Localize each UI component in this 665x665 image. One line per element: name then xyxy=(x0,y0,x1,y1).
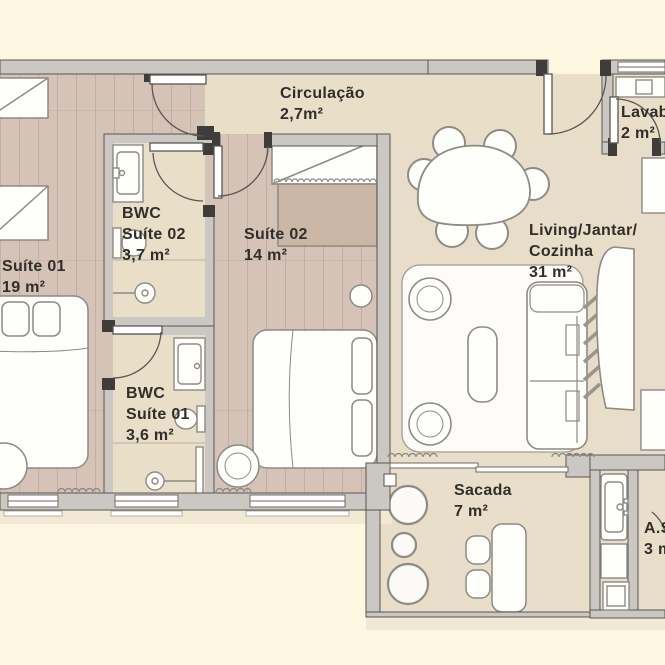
room-area: 3,6 m² xyxy=(126,425,190,446)
as-cabinet xyxy=(601,544,627,578)
room-label-area-servico: A.S. 3 m² xyxy=(644,518,665,560)
sofa xyxy=(527,282,587,449)
living-armchair-bottom xyxy=(409,403,451,445)
room-name: Suíte 02 xyxy=(244,224,308,245)
room-area: 3 m² xyxy=(644,539,665,560)
room-name: Lavabo xyxy=(621,102,665,123)
room-label-circulacao: Circulação 2,7m² xyxy=(280,83,365,125)
room-area: 7 m² xyxy=(454,501,512,522)
room-label-suite01: Suíte 01 19 m² xyxy=(2,256,66,298)
room-label-living: Living/Jantar/ Cozinha 31 m² xyxy=(529,220,637,283)
lavabo-fixtures xyxy=(616,77,665,97)
living-armchair-top xyxy=(409,278,451,320)
dining-table xyxy=(418,146,530,225)
room-name: Suíte 02 xyxy=(122,224,186,245)
room-area: 2 m² xyxy=(621,123,665,144)
room-label-bwc-suite02: BWC Suíte 02 3,7 m² xyxy=(122,203,186,266)
suite02-stool xyxy=(350,285,372,307)
room-area: 2,7m² xyxy=(280,104,365,125)
room-area: 19 m² xyxy=(2,277,66,298)
sacada-chair xyxy=(466,536,490,564)
room-name: Circulação xyxy=(280,83,365,104)
top-wall xyxy=(0,60,548,74)
room-name: Sacada xyxy=(454,480,512,501)
room-name: A.S. xyxy=(644,518,665,539)
room-label-lavabo: Lavabo 2 m² xyxy=(621,102,665,144)
room-name: BWC xyxy=(126,383,190,404)
room-area: 3,7 m² xyxy=(122,245,186,266)
room-name: Suíte 01 xyxy=(2,256,66,277)
suite02-bed xyxy=(253,330,377,468)
room-name: Living/Jantar/ xyxy=(529,220,637,241)
sacada-table xyxy=(492,524,526,612)
room-name: Suíte 01 xyxy=(126,404,190,425)
sacada-chair xyxy=(466,570,490,598)
room-name: BWC xyxy=(122,203,186,224)
floor-plan-canvas: Circulação 2,7m² Lavabo 2 m² Suíte 01 19… xyxy=(0,0,665,665)
washing-machine xyxy=(603,582,629,610)
room-label-suite02: Suíte 02 14 m² xyxy=(244,224,308,266)
room-label-bwc-suite01: BWC Suíte 01 3,6 m² xyxy=(126,383,190,446)
coffee-table xyxy=(468,327,497,402)
suite01-bed xyxy=(0,296,88,468)
room-area: 14 m² xyxy=(244,245,308,266)
laundry-sink xyxy=(601,474,628,540)
bwc-suite02-vanity xyxy=(113,145,143,202)
shower-glass xyxy=(196,447,203,497)
suite02-wardrobe xyxy=(272,140,377,184)
suite02-armchair xyxy=(217,445,259,487)
room-label-sacada: Sacada 7 m² xyxy=(454,480,512,522)
as-top-wall xyxy=(590,455,665,470)
suite02-right-wall xyxy=(377,134,390,493)
room-area: 31 m² xyxy=(529,262,637,283)
room-name: Cozinha xyxy=(529,241,637,262)
